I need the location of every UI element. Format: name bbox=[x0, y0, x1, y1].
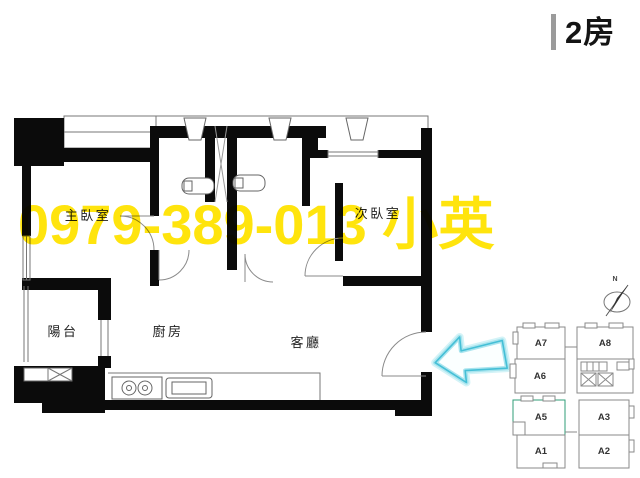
keyplan-unit-a3[interactable]: A3 bbox=[579, 400, 634, 435]
keyplan-unit-a6[interactable]: A6 bbox=[510, 359, 565, 393]
floorplan-page: 2房 bbox=[0, 0, 640, 478]
keyplan-unit-a1[interactable]: A1 bbox=[517, 435, 565, 468]
svg-text:A8: A8 bbox=[599, 338, 611, 349]
building-keyplan: N A7 A6 A5 A1 bbox=[505, 272, 640, 478]
washer-box bbox=[24, 368, 72, 381]
kitchen-counter bbox=[108, 373, 320, 400]
room-label-living-room: 客廳 bbox=[290, 335, 321, 350]
keyplan-unit-a5[interactable]: A5 bbox=[513, 396, 565, 435]
page-header: 2房 bbox=[551, 14, 615, 50]
svg-text:A3: A3 bbox=[598, 412, 610, 423]
page-title: 2房 bbox=[565, 17, 615, 48]
floorplan-drawing: 主臥室 次臥室 陽台 廚房 客廳 bbox=[8, 104, 440, 426]
keyplan-corridor bbox=[565, 347, 577, 432]
svg-text:A1: A1 bbox=[535, 446, 548, 457]
header-accent-bar bbox=[551, 14, 556, 50]
svg-text:N: N bbox=[612, 276, 617, 283]
watermark-phone: 0979-389-013 小英 bbox=[18, 194, 638, 256]
keyplan-unit-a2[interactable]: A2 bbox=[579, 435, 634, 468]
room-label-balcony: 陽台 bbox=[47, 324, 78, 339]
svg-text:A5: A5 bbox=[535, 412, 548, 423]
svg-text:A7: A7 bbox=[535, 338, 547, 349]
svg-text:A6: A6 bbox=[534, 371, 546, 382]
left-arrow-icon bbox=[430, 326, 510, 392]
keyplan-unit-a7[interactable]: A7 bbox=[513, 323, 565, 359]
keyplan-unit-a8[interactable]: A8 bbox=[577, 323, 633, 359]
walls bbox=[14, 118, 432, 416]
svg-text:A2: A2 bbox=[598, 446, 610, 457]
room-label-kitchen: 廚房 bbox=[152, 324, 183, 339]
keyplan-core bbox=[577, 359, 634, 393]
compass-north-icon: N bbox=[604, 276, 630, 316]
